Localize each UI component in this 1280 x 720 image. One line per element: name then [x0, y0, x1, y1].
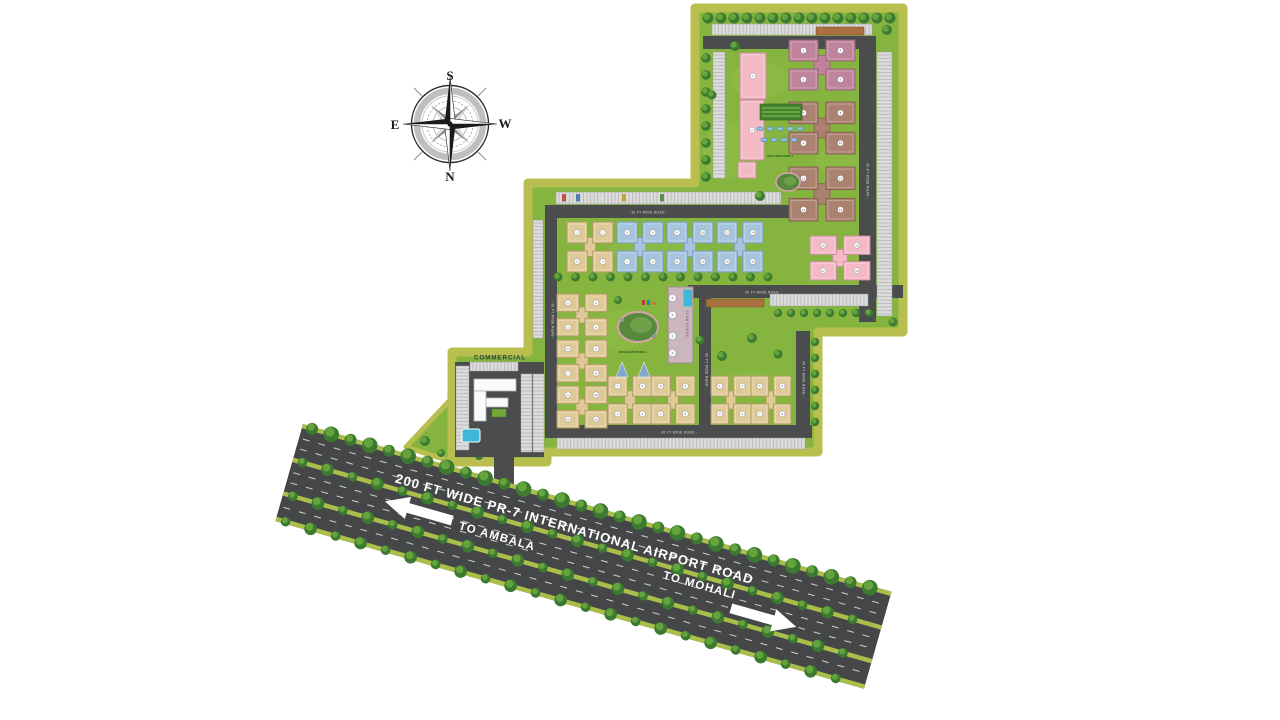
svg-text:15: 15	[725, 260, 729, 264]
club-house: CLUB HOUSE	[668, 287, 693, 363]
lounger-icon	[757, 127, 763, 131]
tree-icon	[694, 273, 703, 282]
tree-icon	[811, 418, 819, 426]
highway: 200 FT WIDE PR-7 INTERNATIONAL AIRPORT R…	[274, 419, 893, 693]
svg-text:14: 14	[751, 231, 755, 235]
tree-icon	[882, 25, 892, 35]
lounger-icon	[791, 138, 797, 142]
commercial-label: COMMERCIAL	[474, 355, 526, 362]
tree-icon	[764, 273, 773, 282]
svg-text:18: 18	[855, 269, 859, 273]
tree-icon	[774, 309, 782, 317]
internal-road-label: - 30 FT WIDE ROAD -	[866, 160, 870, 199]
internal-road-label: - 30 FT WIDE ROAD -	[705, 350, 709, 389]
tree-icon	[701, 172, 711, 182]
tree-icon	[701, 121, 711, 131]
compass-label-top: S	[446, 68, 453, 83]
internal-road-label: - 30 FT WIDE ROAD -	[802, 358, 806, 397]
svg-text:10: 10	[839, 141, 843, 145]
tree-icon	[659, 273, 668, 282]
svg-text:14: 14	[839, 208, 843, 212]
tree-icon	[813, 309, 821, 317]
highway-surface	[275, 424, 891, 689]
compass-label-right: W	[499, 116, 512, 131]
tree-icon	[437, 449, 445, 457]
parking-strip	[521, 374, 532, 452]
tower-block	[738, 162, 756, 178]
parked-car	[562, 194, 566, 202]
tree-icon	[768, 13, 779, 24]
parked-car	[576, 194, 580, 202]
tree-icon	[747, 333, 757, 343]
playground-item	[652, 302, 656, 305]
site-plan: 1234567891011121314151617181234567891011…	[406, 8, 903, 494]
tree-icon	[730, 41, 740, 51]
svg-text:11: 11	[566, 417, 569, 421]
tree-icon	[826, 309, 834, 317]
svg-text:11: 11	[676, 260, 679, 264]
compass-label-left: E	[391, 117, 400, 132]
tree-icon	[820, 13, 831, 24]
tree-icon	[839, 309, 847, 317]
parking-strip	[533, 374, 544, 452]
park-1-label: ORCHARD PARK-1	[619, 350, 647, 354]
lounger-icon	[781, 138, 787, 142]
tree-icon	[701, 104, 711, 114]
tree-icon	[807, 13, 818, 24]
lounger-icon	[767, 127, 773, 131]
tree-icon	[852, 309, 860, 317]
lounger-icon	[771, 138, 777, 142]
tree-icon	[701, 53, 711, 63]
rock	[652, 334, 656, 338]
tree-icon	[787, 309, 795, 317]
tree-icon	[755, 13, 766, 24]
rock	[620, 318, 624, 322]
tree-icon	[716, 13, 727, 24]
tree-icon	[701, 70, 711, 80]
parked-car	[660, 194, 664, 202]
lounger-icon	[777, 127, 783, 131]
tree-icon	[833, 13, 844, 24]
tree-icon	[701, 138, 711, 148]
svg-text:16: 16	[855, 243, 859, 247]
commercial-building	[486, 398, 508, 407]
playground-item	[642, 300, 645, 305]
tree-icon	[872, 13, 883, 24]
svg-text:12: 12	[839, 176, 843, 180]
tree-icon	[703, 13, 714, 24]
svg-text:13: 13	[802, 208, 806, 212]
svg-text:10: 10	[701, 231, 705, 235]
tree-icon	[794, 13, 805, 24]
tree-icon	[746, 273, 755, 282]
tree-icon	[614, 296, 622, 304]
tree-icon	[717, 351, 727, 361]
svg-text:15: 15	[822, 243, 826, 247]
tree-icon	[811, 370, 819, 378]
svg-text:10: 10	[594, 393, 598, 397]
tree-icon	[846, 13, 857, 24]
svg-text:11: 11	[802, 176, 805, 180]
tree-icon	[711, 273, 720, 282]
tree-icon	[811, 402, 819, 410]
svg-text:17: 17	[822, 269, 826, 273]
residential-cluster	[738, 162, 756, 178]
tree-icon	[889, 318, 898, 327]
commercial-pool	[462, 429, 480, 442]
tree-icon	[859, 13, 870, 24]
club-house-label: CLUB HOUSE	[685, 310, 689, 337]
tree-icon	[811, 354, 819, 362]
tree-icon	[696, 336, 705, 345]
tree-icon	[676, 273, 685, 282]
internal-road-label: - 30 FT WIDE ROAD -	[742, 291, 781, 295]
planter-strip	[816, 27, 864, 35]
parked-car	[622, 194, 626, 202]
tree-icon	[755, 191, 765, 201]
tree-icon	[708, 91, 717, 100]
internal-road	[545, 205, 797, 218]
internal-road-label: - 30 FT WIDE ROAD -	[628, 211, 667, 215]
parking-strip	[556, 192, 781, 204]
tree-icon	[811, 386, 819, 394]
parking-strip	[877, 52, 892, 316]
svg-text:12: 12	[701, 260, 705, 264]
tree-icon	[774, 350, 783, 359]
tree-icon	[420, 436, 430, 446]
tree-icon	[742, 13, 753, 24]
compass-rose-icon: S N E W	[391, 68, 512, 184]
svg-text:16: 16	[751, 260, 755, 264]
tree-icon	[554, 273, 563, 282]
tree-icon	[641, 273, 650, 282]
internal-road-label: - 30 FT WIDE ROAD -	[551, 300, 555, 339]
commercial-green	[492, 409, 506, 417]
tree-icon	[885, 13, 896, 24]
tree-icon	[701, 155, 711, 165]
tree-icon	[624, 273, 633, 282]
residential-cluster: 1	[740, 53, 766, 99]
planter-strip	[706, 299, 764, 307]
commercial-building	[474, 391, 486, 421]
parking-strip	[713, 52, 725, 178]
tree-icon	[606, 273, 615, 282]
site-plan-canvas: S N E W 12345678910111213141516171812345…	[0, 0, 1280, 720]
tree-icon	[571, 273, 580, 282]
tree-icon	[729, 273, 738, 282]
tree-icon	[865, 309, 873, 317]
svg-text:12: 12	[594, 417, 598, 421]
commercial-block: COMMERCIAL	[455, 355, 544, 458]
tree-icon	[589, 273, 598, 282]
compass-label-bottom: N	[445, 169, 455, 184]
parking-strip	[557, 438, 805, 449]
tree-icon	[781, 13, 792, 24]
lounger-icon	[787, 127, 793, 131]
internal-road-label: - 30 FT WIDE ROAD -	[658, 431, 697, 435]
parked-car	[598, 194, 602, 202]
svg-text:13: 13	[725, 231, 729, 235]
commercial-building	[474, 379, 516, 391]
club-house-pool	[684, 290, 693, 307]
lounger-icon	[761, 138, 767, 142]
lounger-icon	[797, 127, 803, 131]
tree-icon	[729, 13, 740, 24]
playground-item	[647, 300, 650, 305]
park-2-label: ORCHARD PARK-2	[767, 154, 794, 158]
tree-icon	[811, 338, 819, 346]
tree-icon	[800, 309, 808, 317]
